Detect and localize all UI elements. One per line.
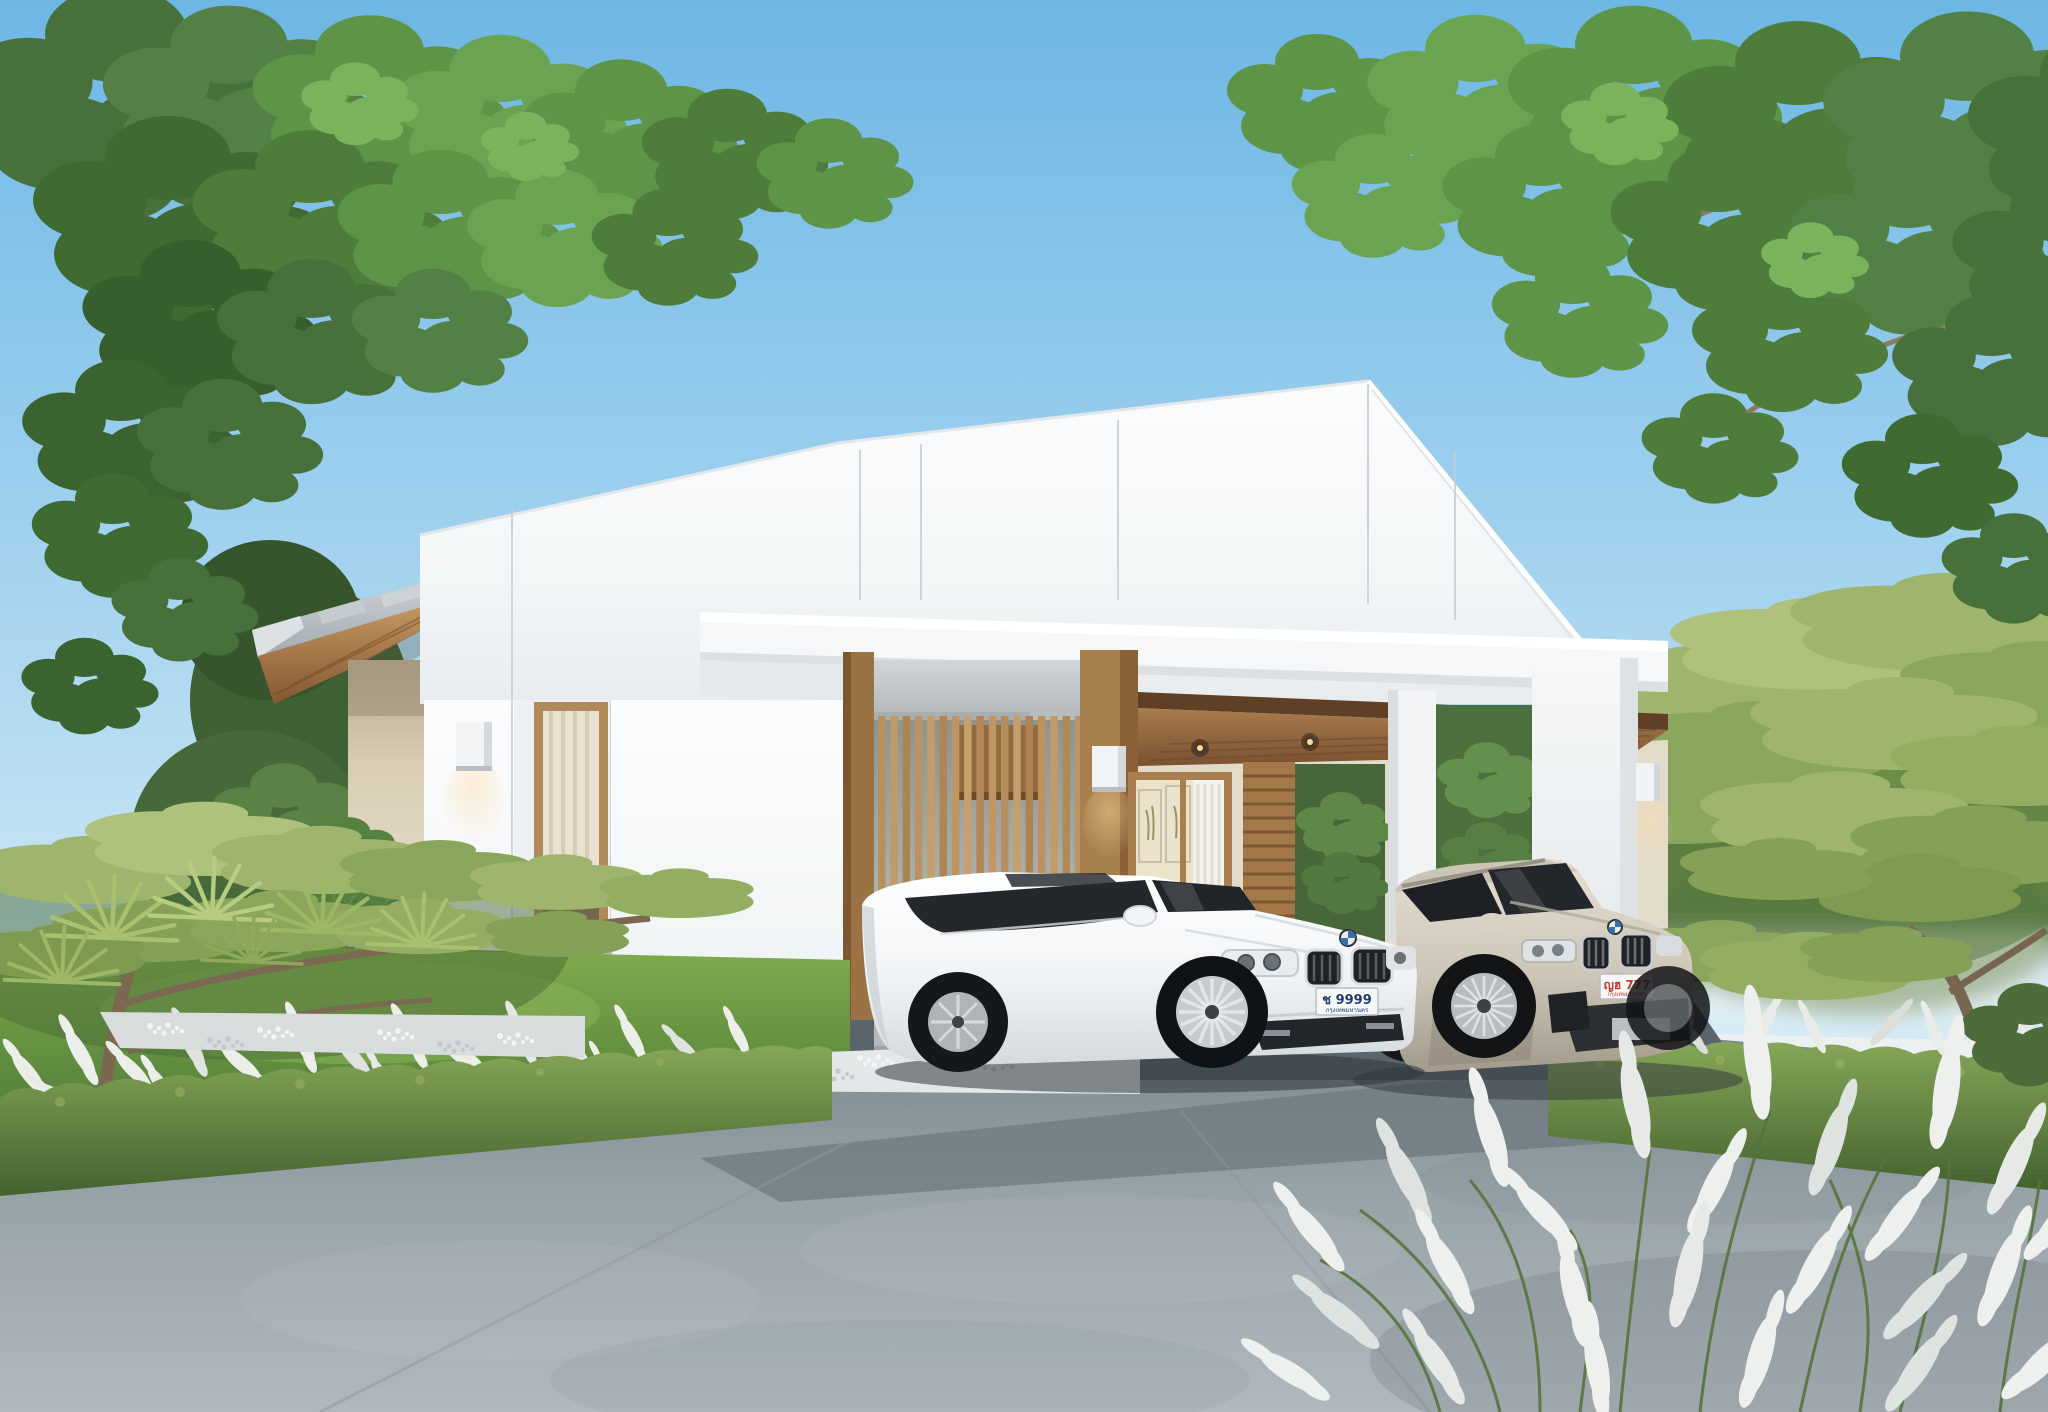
suv-mirror xyxy=(1478,913,1506,931)
wall-lamp-post xyxy=(1092,746,1126,792)
artwork-frame xyxy=(1139,790,1161,862)
suv-wheel-front xyxy=(1432,954,1536,1058)
sedan-plate-number: ช 9999 xyxy=(1322,993,1372,1008)
sedan-mirror xyxy=(1124,906,1156,926)
suv-wheel-far xyxy=(1626,966,1710,1050)
wall-lamp-right xyxy=(1636,763,1660,801)
slat-lintel xyxy=(874,660,1080,720)
sedan-wheel-front xyxy=(1156,956,1268,1068)
scene-canvas: ญฮ 777 กรุงเทพมหานคร xyxy=(0,0,2048,1412)
architecture-rendering: ญฮ 777 กรุงเทพมหานคร xyxy=(0,0,2048,1412)
sedan-wheel-rear xyxy=(908,972,1008,1072)
artwork-frame xyxy=(1166,786,1190,862)
sedan-plate-region: กรุงเทพมหานคร xyxy=(1326,1007,1369,1014)
